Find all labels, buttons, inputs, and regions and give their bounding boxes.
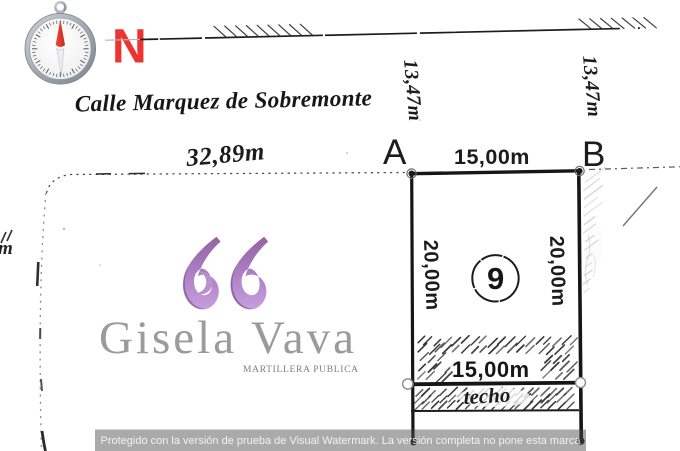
svg-text:Protegido con la versión de pr: Protegido con la versión de prueba de Vi…: [101, 435, 582, 447]
svg-text:15,00m: 15,00m: [454, 145, 530, 169]
svg-text:Gisela Vava: Gisela Vava: [99, 312, 357, 364]
svg-text:techo: techo: [463, 383, 511, 409]
svg-text:13,47m: 13,47m: [578, 55, 605, 118]
svg-text:20,00m: 20,00m: [545, 235, 569, 307]
svg-text:13,47m: 13,47m: [399, 59, 426, 122]
svg-text:9: 9: [487, 261, 504, 296]
svg-text:32,89m: 32,89m: [184, 138, 266, 172]
svg-text:N: N: [112, 21, 147, 74]
svg-text:MARTILLERA PUBLICA: MARTILLERA PUBLICA: [243, 365, 359, 375]
svg-text:A: A: [383, 133, 407, 172]
svg-text:B: B: [582, 135, 605, 174]
svg-text:Calle Marquez de Sobremonte: Calle Marquez de Sobremonte: [75, 85, 373, 117]
svg-text:20,00m: 20,00m: [419, 239, 443, 311]
svg-text:15,00m: 15,00m: [452, 357, 530, 382]
